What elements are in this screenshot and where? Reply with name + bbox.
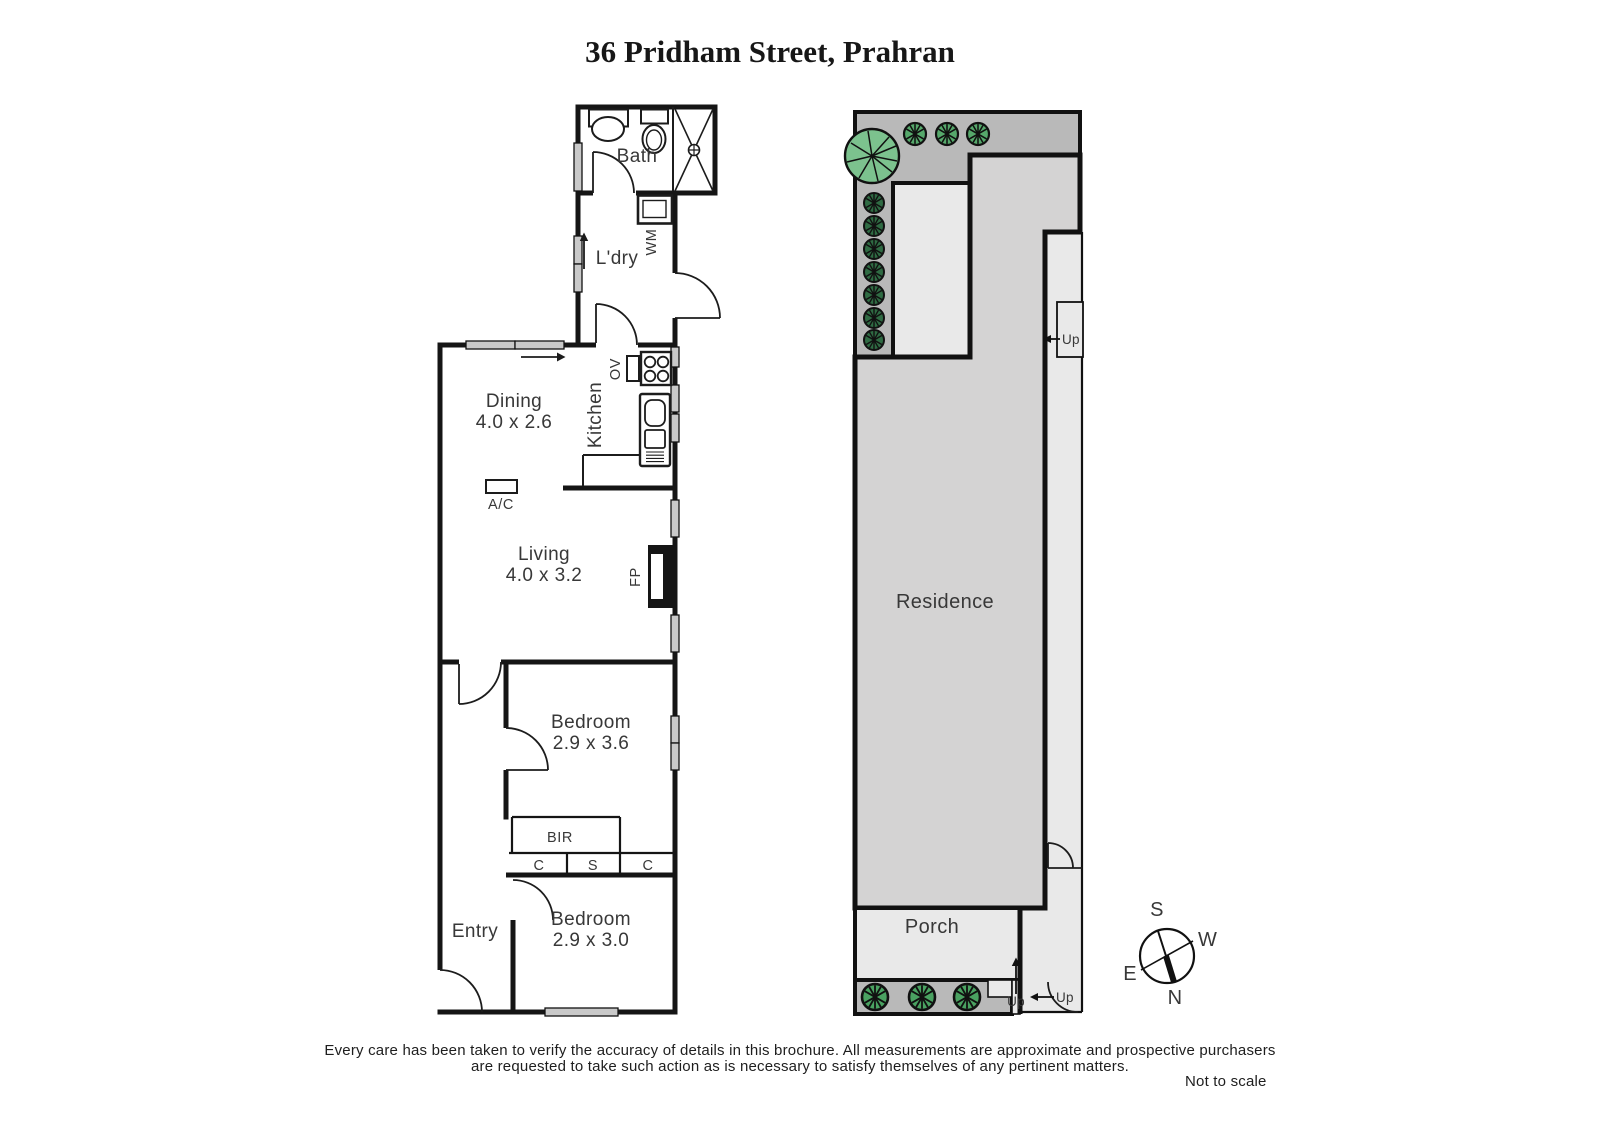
- walkway-front: [893, 183, 970, 357]
- bush-icon: [954, 984, 980, 1010]
- window-bedroom1-1: [671, 716, 679, 743]
- window-living-1: [671, 500, 679, 537]
- burner-icon: [645, 357, 656, 368]
- bush-icon: [936, 123, 958, 145]
- burner-icon: [658, 371, 669, 382]
- window-kitchen-2: [671, 385, 679, 412]
- window-bedroom1-2: [671, 743, 679, 770]
- sink-bowl-icon: [645, 430, 665, 448]
- label-bir: BIR: [547, 830, 573, 846]
- bush-icon: [864, 193, 884, 213]
- window-bath: [574, 143, 582, 191]
- door-entry: [440, 970, 482, 1012]
- ac-unit-icon: [486, 480, 517, 493]
- window-kitchen-1: [671, 347, 679, 367]
- door-bedroom2: [513, 880, 553, 920]
- window-bedroom2: [545, 1008, 618, 1016]
- sink-drainer-icon: [646, 452, 664, 462]
- floor-plan: Bath L'dry WM Dining 4.0 x 2.6 Kitchen O…: [438, 105, 721, 1017]
- door-kitchen: [596, 304, 637, 345]
- fireplace-hearth: [651, 554, 663, 599]
- label-east: E: [1123, 963, 1137, 985]
- window-laundry-2: [574, 264, 582, 292]
- side-step: [1057, 302, 1083, 357]
- burner-icon: [645, 371, 656, 382]
- toilet-cistern: [641, 110, 668, 124]
- label-up-porch: Up: [1007, 994, 1025, 1009]
- floorplan-graphic: Bath L'dry WM Dining 4.0 x 2.6 Kitchen O…: [0, 0, 1600, 1131]
- burner-icon: [658, 357, 669, 368]
- kitchen-bench-edge: [583, 455, 640, 486]
- bush-icon: [862, 984, 888, 1010]
- label-residence: Residence: [896, 591, 994, 613]
- label-wm: WM: [644, 229, 660, 256]
- label-ac: A/C: [488, 497, 514, 513]
- label-dining: Dining: [486, 391, 542, 412]
- tree-icon: [845, 129, 899, 183]
- sink-tap-icon: [645, 400, 665, 426]
- label-living-dims: 4.0 x 3.2: [506, 565, 582, 586]
- laundry-fixtures: [638, 196, 672, 224]
- room-labels: Bath L'dry WM Dining 4.0 x 2.6 Kitchen O…: [452, 146, 660, 951]
- basin-icon: [592, 117, 624, 141]
- site-plan: Up Up Up: [845, 112, 1083, 1014]
- bush-icon: [864, 262, 884, 282]
- oven-icon: [627, 356, 639, 381]
- compass-needle-thick: [1166, 956, 1174, 982]
- label-bath: Bath: [617, 146, 658, 167]
- brochure-page: 36 Pridham Street, Prahran: [0, 0, 1600, 1131]
- label-entry: Entry: [452, 921, 498, 942]
- disclaimer-text: Every care has been taken to verify the …: [0, 1043, 1600, 1074]
- bush-icon: [967, 123, 989, 145]
- label-up-side: Up: [1062, 332, 1080, 347]
- disclaimer-line-2: are requested to take such action as is …: [0, 1059, 1600, 1075]
- door-laundry-rear: [675, 273, 720, 318]
- label-ov: OV: [608, 358, 624, 380]
- label-closet-shelf: S: [588, 858, 598, 874]
- label-kitchen: Kitchen: [585, 382, 606, 448]
- scale-note: Not to scale: [1185, 1073, 1267, 1090]
- disclaimer-line-1: Every care has been taken to verify the …: [0, 1043, 1600, 1059]
- window-dining-1: [466, 341, 515, 349]
- label-bedroom2: Bedroom: [551, 909, 631, 930]
- label-porch: Porch: [905, 916, 959, 938]
- label-west: W: [1198, 929, 1217, 951]
- bush-icon: [864, 285, 884, 305]
- label-up-gate: Up: [1056, 990, 1074, 1005]
- living-fixtures: [486, 480, 677, 608]
- bush-icon: [864, 216, 884, 236]
- label-north: N: [1168, 987, 1183, 1009]
- bush-icon: [864, 330, 884, 350]
- compass-needle-thin: [1158, 931, 1166, 956]
- washing-machine-inner: [643, 201, 666, 218]
- label-bedroom1: Bedroom: [551, 712, 631, 733]
- bush-icon: [864, 308, 884, 328]
- door-bedroom1: [506, 728, 548, 770]
- label-south: S: [1150, 899, 1164, 921]
- label-bedroom2-dims: 2.9 x 3.0: [553, 930, 629, 951]
- window-dining-2: [515, 341, 564, 349]
- bush-icon: [864, 239, 884, 259]
- label-closet-right: C: [642, 858, 653, 874]
- bush-icon: [904, 123, 926, 145]
- label-fp: FP: [628, 567, 644, 587]
- label-dining-dims: 4.0 x 2.6: [476, 412, 552, 433]
- compass-rose: S W E N: [1123, 899, 1217, 1009]
- label-laundry: L'dry: [596, 248, 639, 269]
- label-bedroom1-dims: 2.9 x 3.6: [553, 733, 629, 754]
- window-living-2: [671, 615, 679, 652]
- door-living-hall: [459, 662, 501, 704]
- window-kitchen-3: [671, 414, 679, 442]
- label-living: Living: [518, 544, 570, 565]
- bush-icon: [909, 984, 935, 1010]
- shower: [673, 107, 713, 191]
- label-closet-left: C: [533, 858, 544, 874]
